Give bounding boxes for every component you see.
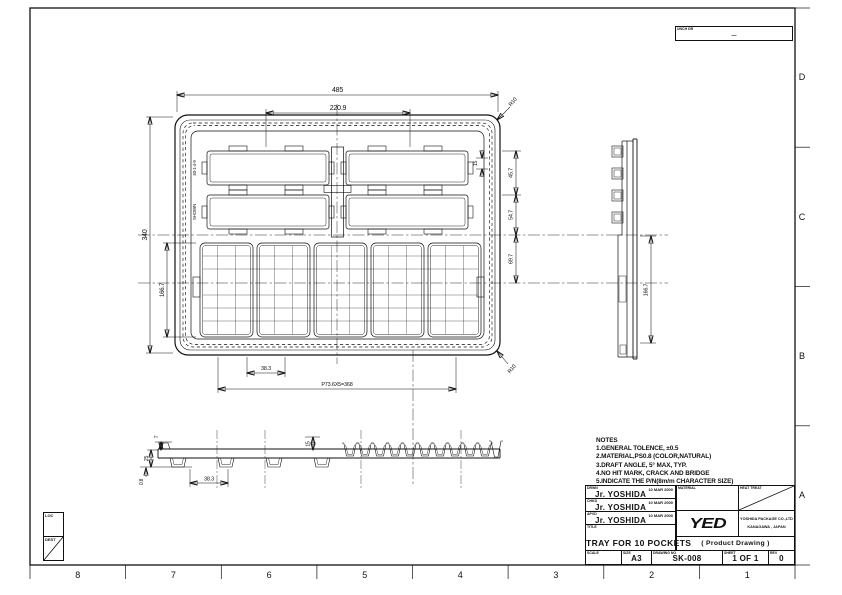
note-line: 3.DRAFT ANGLE, 5° MAX, TYP. xyxy=(596,462,811,470)
dim-thickness: 0.8 xyxy=(139,478,145,485)
dest-box: DEST xyxy=(43,536,64,561)
sheet-size: A3 xyxy=(622,554,651,563)
lower-pockets xyxy=(193,243,484,337)
centerlines xyxy=(138,104,668,490)
note-line: 2.MATERIAL,PS0.8 (COLOR,NATURAL) xyxy=(596,453,811,461)
note-line: 1.GENERAL TOLENCE, ±0.5 xyxy=(596,445,811,453)
zone-letter: B xyxy=(799,351,805,361)
side-view-tabs xyxy=(612,146,623,223)
dim-depth: 25 xyxy=(144,456,150,462)
zone-letter: C xyxy=(799,212,806,222)
dim-pocket-zone-height: 166.7 xyxy=(160,282,166,297)
shown-label: SHOWN xyxy=(192,204,197,220)
diagonal-line xyxy=(44,537,63,560)
zone-number: 7 xyxy=(171,570,176,580)
dim-pocket-height: 15 xyxy=(306,441,312,447)
note-line: 4.NO HIT MARK, CRACK AND BRIDGE xyxy=(596,470,811,478)
company-cell: YOSHIDA PACKAGE CO.,LTD KANAGAWA , JAPAN xyxy=(738,510,795,537)
zone-number: 8 xyxy=(75,570,80,580)
dim-pitch: P73.6X5=368 xyxy=(321,382,352,388)
tray-side-view: 166.7 xyxy=(612,139,656,359)
zone-number: 3 xyxy=(553,570,558,580)
dim-inner-width: 220.9 xyxy=(330,105,347,112)
loc-box-label: LOC xyxy=(45,513,53,518)
sheet-cell: SHEET 1 OF 1 xyxy=(722,550,769,565)
scale-label: SCALE xyxy=(587,551,599,555)
scale-cell: SCALE xyxy=(585,550,622,565)
size-cell: SIZE A3 xyxy=(621,550,652,565)
approval-row-approved: APVD 10 MAR 2000 Jr. YOSHIDA xyxy=(585,511,676,525)
zone-letter: A xyxy=(799,490,805,500)
logo-cell: YED xyxy=(676,510,739,537)
dim-overall-width: 485 xyxy=(332,87,343,94)
dim-radius-top: R10 xyxy=(508,97,519,108)
drawing-sheet: 8 7 6 5 4 3 2 1 D C B A xyxy=(0,0,842,595)
notes-block: NOTES 1.GENERAL TOLENCE, ±0.5 2.MATERIAL… xyxy=(596,437,811,486)
zone-number: 5 xyxy=(362,570,367,580)
zone-number: 2 xyxy=(649,570,654,580)
zone-letter: D xyxy=(799,72,806,82)
zone-number: 1 xyxy=(745,570,750,580)
approval-date: 10 MAR 2000 xyxy=(648,500,673,505)
dim-front-pocket-width: 38.3 xyxy=(204,477,214,483)
zone-number: 4 xyxy=(458,570,463,580)
part-number-label: 40-1-4-9 xyxy=(192,160,197,176)
product-type-cell: ( Product Drawing ) xyxy=(676,536,795,551)
dim-right-2: 54.7 xyxy=(509,210,515,220)
dim-overall-height: 340 xyxy=(142,229,149,240)
zone-number: 6 xyxy=(267,570,272,580)
dim-step: 15 xyxy=(473,161,479,167)
material-cell: MATERIAL xyxy=(676,485,739,511)
approval-row-checked: CHKD 10 MAR 2000 Jr. YOSHIDA xyxy=(585,498,676,512)
dim-radius-bottom: R10 xyxy=(507,364,518,375)
zone-letters: D C B A xyxy=(799,72,806,500)
dim-side-height: 166.7 xyxy=(644,283,650,296)
company-name: YOSHIDA PACKAGE CO.,LTD xyxy=(739,517,794,521)
drawing-title: TRAY FOR 10 POCKETS xyxy=(586,538,675,548)
front-view-bumps xyxy=(170,458,330,467)
rev-cell: REV 0 xyxy=(768,550,795,565)
notes-heading: NOTES xyxy=(596,437,811,445)
dim-lip: 7 xyxy=(154,435,160,438)
title-cell: TITLE TRAY FOR 10 POCKETS xyxy=(585,524,676,551)
title-label: TITLE xyxy=(587,525,597,529)
drawing-no: SK-008 xyxy=(652,554,722,563)
revision-box-label: UNCH DR xyxy=(677,27,693,31)
company-location: KANAGAWA , JAPAN xyxy=(739,525,794,529)
loc-box: LOC xyxy=(43,512,64,537)
approval-date: 10 MAR 2000 xyxy=(648,487,673,492)
material-label: MATERIAL xyxy=(678,486,696,490)
revision-box: UNCH DR — xyxy=(675,26,793,41)
approval-date: 10 MAR 2000 xyxy=(648,513,673,518)
pocket-grid xyxy=(203,256,478,321)
company-logo: YED xyxy=(677,515,738,532)
sheet-number: 1 OF 1 xyxy=(723,554,768,563)
rev-number: 0 xyxy=(769,554,794,563)
tray-front-view: 7 25 0.8 38.3 15 xyxy=(139,435,503,487)
dim-pocket-width: 38.3 xyxy=(261,366,271,372)
dim-right-1: 45.7 xyxy=(509,168,515,178)
revision-box-value: — xyxy=(676,33,792,39)
drawing-no-cell: DRAWING NO SK-008 xyxy=(651,550,723,565)
zone-ticks-bottom xyxy=(30,565,795,579)
upper-pockets xyxy=(202,146,473,237)
diagonal-line xyxy=(739,486,794,510)
heat-treat-cell: HEAT TREAT xyxy=(738,485,795,511)
approval-row-drawn: DRWN 10 MAR 2000 Jr. YOSHIDA xyxy=(585,485,676,499)
dim-right-3: 69.7 xyxy=(509,254,515,264)
front-view-pocket-sections xyxy=(342,443,493,456)
product-type: ( Product Drawing ) xyxy=(677,540,794,547)
